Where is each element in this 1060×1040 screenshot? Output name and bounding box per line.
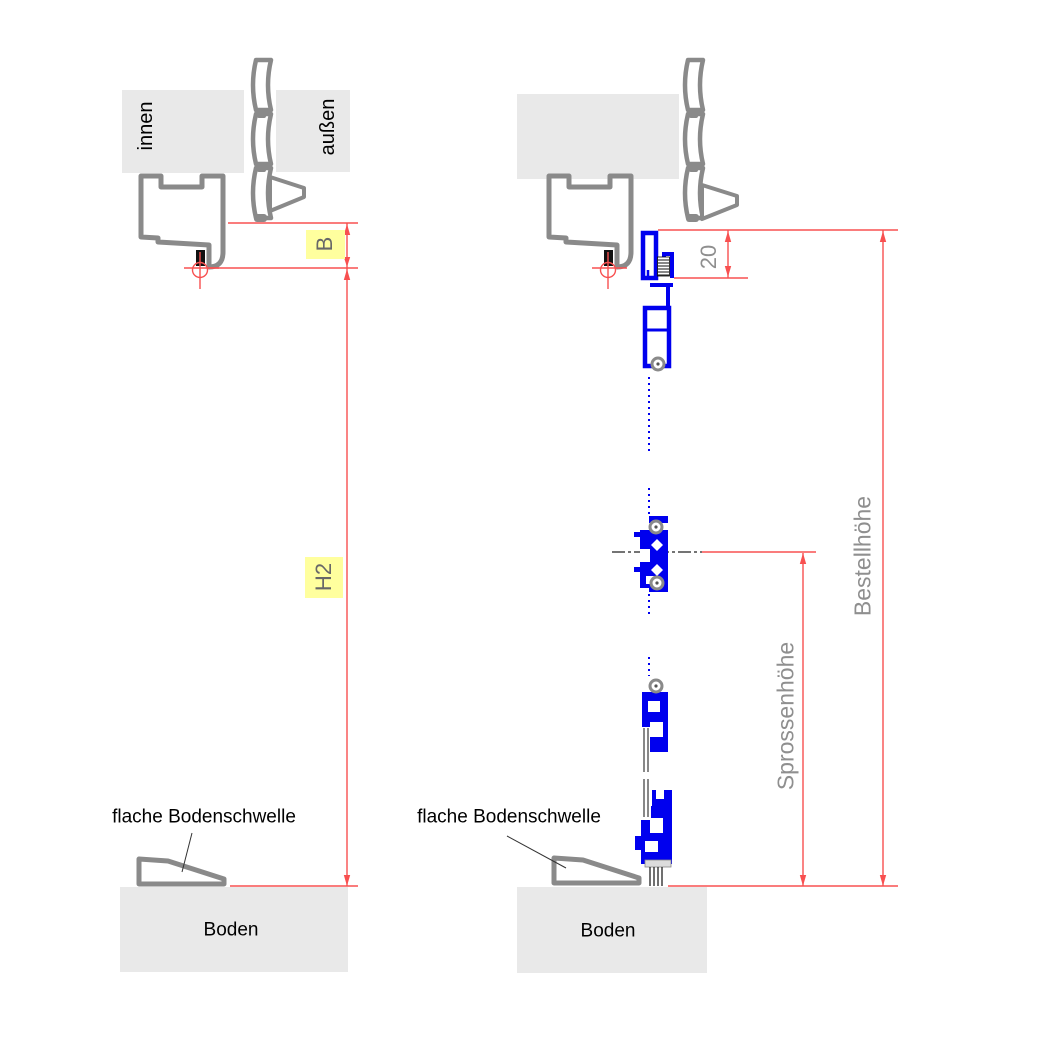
leader-line-right	[507, 836, 566, 868]
guide-funnel-left	[270, 177, 304, 211]
sash-top-profile	[645, 285, 673, 370]
inside-label: innen	[136, 102, 156, 151]
wall-block-right	[517, 94, 679, 179]
rung-height-label: Sprossenhöhe	[775, 642, 798, 790]
section-drawing	[0, 0, 1060, 1040]
lintel-profile-right	[549, 176, 631, 267]
bottom-sill-profile	[635, 790, 672, 867]
sash-meeting-profile	[641, 680, 668, 752]
floor-label-right: Boden	[581, 922, 636, 941]
dim-20-label: 20	[698, 245, 720, 269]
technical-drawing-canvas: innen außen B H2 20 Bestellhöhe Sprossen…	[0, 0, 1060, 1040]
glazing-bar-profile	[634, 516, 668, 592]
dimensions-left	[210, 223, 358, 886]
floor-label-left: Boden	[204, 921, 259, 940]
dim-h2-label: H2	[313, 563, 335, 591]
outside-label: außen	[318, 99, 338, 156]
bottom-brush-seal	[650, 867, 662, 886]
threshold-label-left: flache Bodenschwelle	[112, 808, 296, 827]
threshold-label-right: flache Bodenschwelle	[417, 808, 601, 827]
lintel-profile-left	[141, 176, 223, 267]
guide-funnel-right	[702, 185, 737, 219]
threshold-profile-left	[139, 859, 224, 884]
brush-seal-hatch	[658, 257, 670, 276]
order-height-label: Bestellhöhe	[852, 496, 875, 616]
threshold-profile-right	[554, 858, 639, 883]
dim-b-label: B	[314, 237, 336, 252]
